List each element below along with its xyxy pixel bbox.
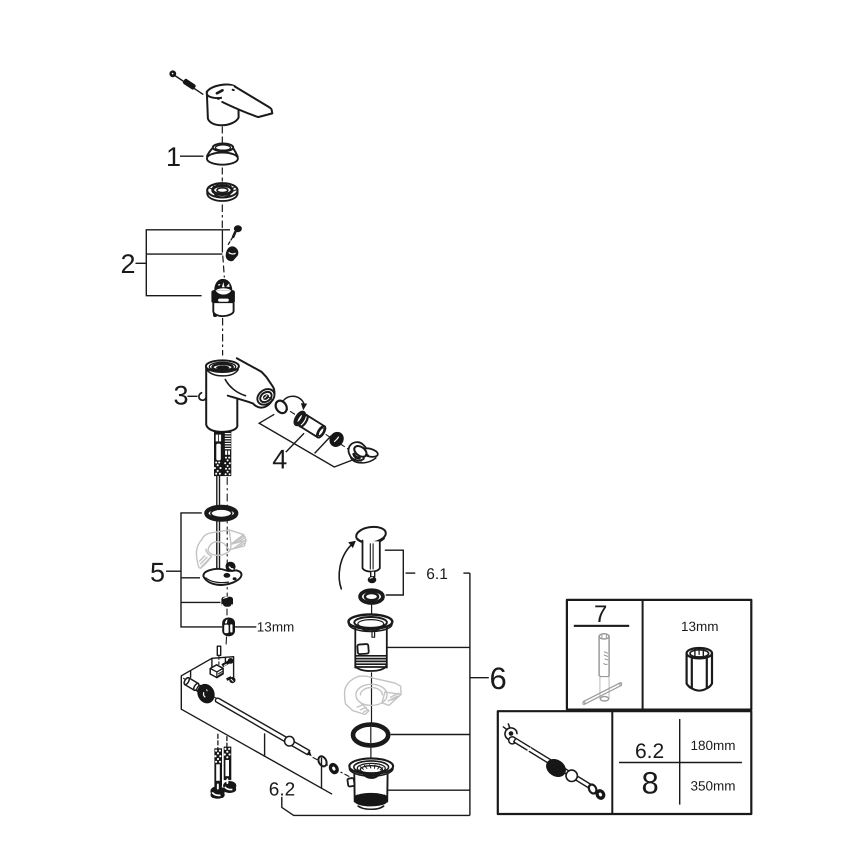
svg-text:13mm: 13mm	[681, 619, 719, 634]
svg-text:5: 5	[150, 558, 165, 588]
svg-text:6.2: 6.2	[269, 780, 295, 801]
svg-text:13mm: 13mm	[257, 620, 295, 635]
svg-text:350mm: 350mm	[691, 779, 736, 794]
svg-text:180mm: 180mm	[691, 738, 736, 753]
svg-text:4: 4	[272, 445, 287, 475]
svg-text:7: 7	[594, 601, 607, 628]
svg-text:8: 8	[642, 766, 659, 801]
svg-text:3: 3	[174, 381, 189, 411]
svg-text:6.2: 6.2	[635, 740, 664, 763]
svg-text:6.1: 6.1	[426, 566, 448, 583]
svg-text:1: 1	[166, 142, 181, 172]
svg-text:2: 2	[121, 249, 136, 279]
svg-text:6: 6	[490, 661, 507, 696]
